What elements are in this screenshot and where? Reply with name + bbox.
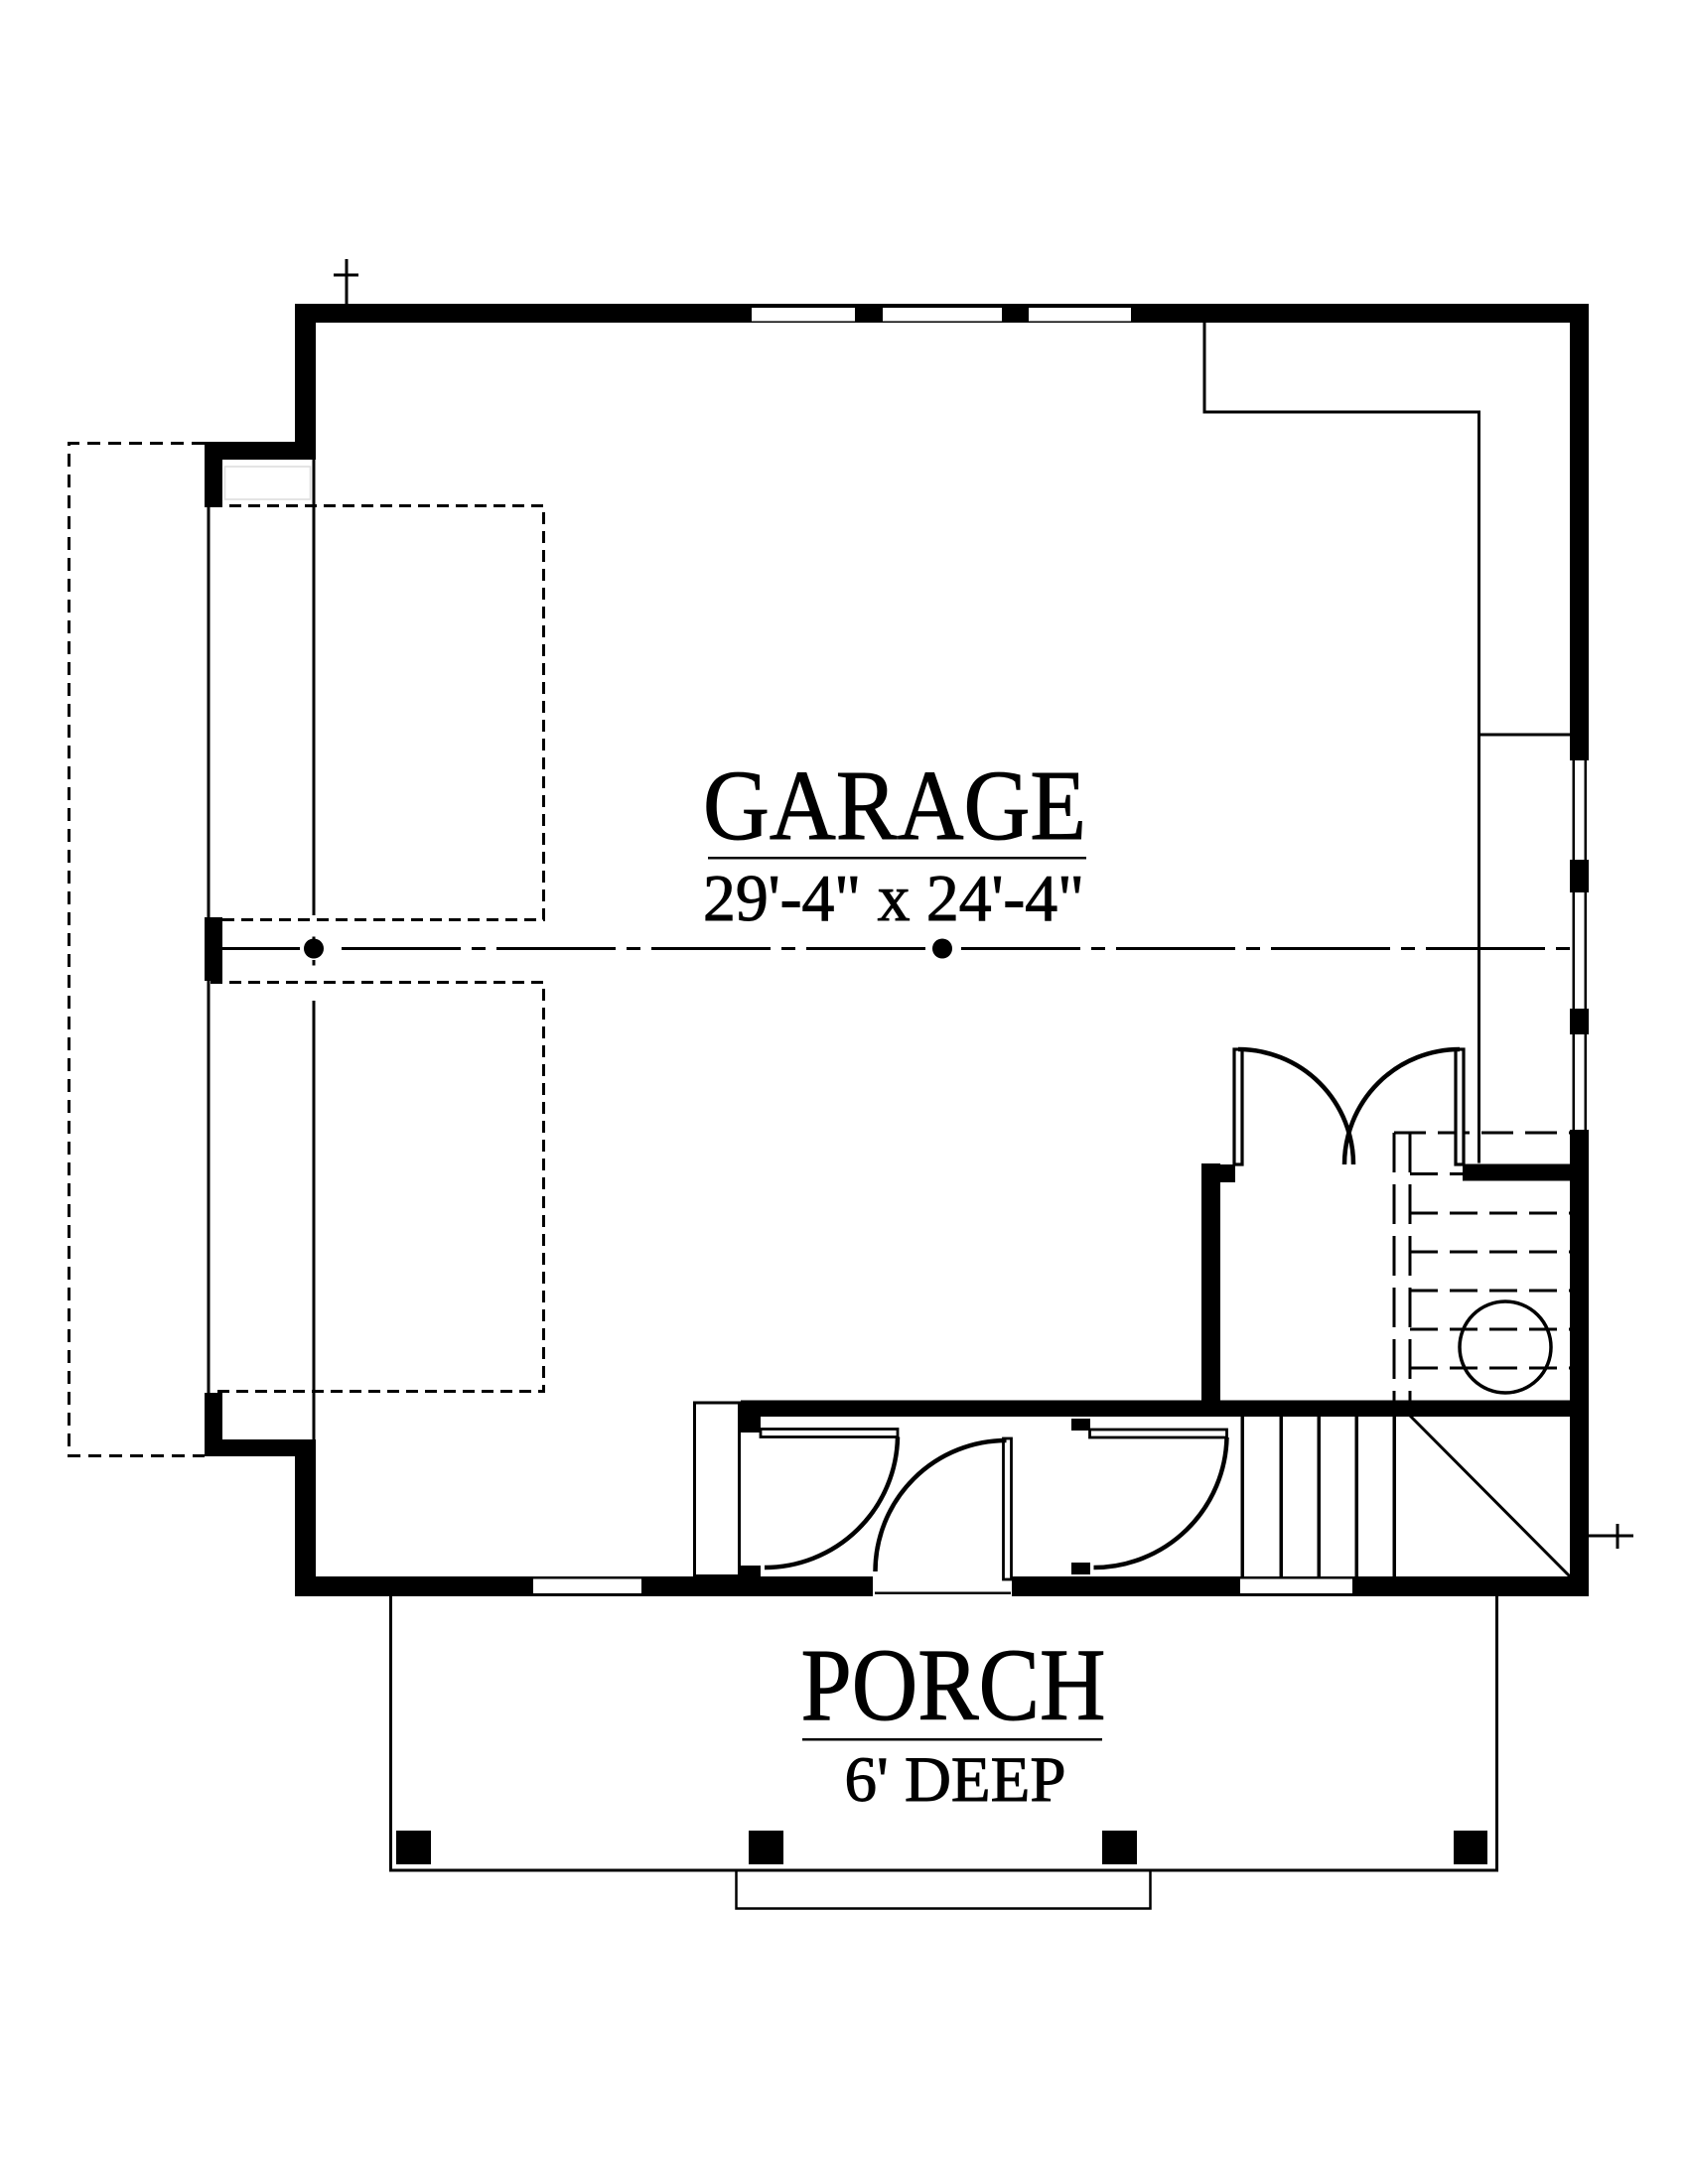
- svg-text:PORCH: PORCH: [801, 1628, 1106, 1742]
- svg-text:GARAGE: GARAGE: [703, 750, 1086, 861]
- svg-text:6' DEEP: 6' DEEP: [845, 1744, 1066, 1816]
- svg-text:29'-4" x 24'-4": 29'-4" x 24'-4": [703, 862, 1084, 935]
